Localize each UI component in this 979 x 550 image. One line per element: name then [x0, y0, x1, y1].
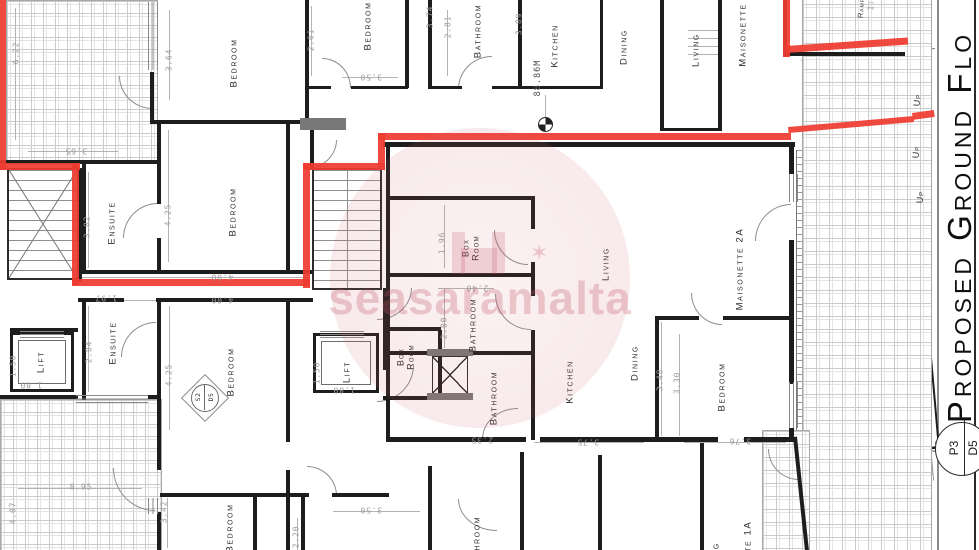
dim-label: 3.76	[729, 437, 751, 446]
wall	[789, 240, 794, 384]
ramp-label: Ramp	[856, 0, 866, 18]
wall	[700, 443, 704, 550]
site-boundary-line	[0, 0, 6, 170]
dim-label: 3.50	[360, 506, 382, 515]
dim-label: 3.74	[426, 6, 435, 28]
wall	[531, 330, 535, 440]
wall	[388, 273, 531, 277]
wall	[386, 142, 390, 442]
door-arc	[322, 58, 351, 88]
wall	[351, 86, 408, 89]
wall	[383, 327, 441, 331]
wall	[660, 0, 664, 130]
room-label: Maisonette	[738, 3, 749, 67]
room-label: Box Room	[396, 344, 417, 370]
room-label: Maisonette 2A	[735, 228, 746, 311]
level-label: 88.86M	[533, 60, 543, 97]
wall	[78, 270, 313, 274]
dim-label: 2.40	[466, 284, 488, 293]
dimension-line	[168, 130, 169, 262]
wall	[160, 493, 309, 497]
site-boundary-line	[0, 163, 80, 170]
dim-label: 8.95	[70, 483, 92, 492]
door-arc	[307, 466, 337, 496]
room-label: Living	[711, 542, 722, 550]
dim-label: 3.89	[515, 13, 524, 35]
wall	[286, 298, 290, 442]
window	[789, 174, 798, 202]
dim-label: 3.50	[360, 73, 382, 82]
dim-label: 4.25	[165, 364, 174, 386]
ref-bubble-bottom: D5	[966, 440, 979, 455]
staircase-left	[7, 168, 79, 280]
marker-bottom-text: D5	[207, 393, 215, 402]
room-label: Dining	[619, 29, 630, 65]
wall	[301, 497, 305, 550]
door-arc	[755, 204, 791, 241]
wall	[150, 72, 154, 124]
dim-label: 3.64	[165, 49, 174, 71]
dimension-line	[80, 277, 308, 278]
room-label: Dining	[630, 345, 641, 381]
dimension-line	[15, 8, 16, 140]
dim-label: 1.96	[438, 232, 447, 254]
wall	[723, 316, 793, 320]
room-label: Bedroom	[363, 1, 374, 50]
pavement-tiles	[802, 0, 932, 550]
wall	[518, 86, 603, 89]
room-label: Bedroom	[226, 347, 237, 396]
room-label: Bathroom	[489, 371, 500, 425]
dim-label: 6.22	[12, 42, 21, 64]
wall	[157, 124, 161, 204]
room-label: Ensuite	[108, 321, 119, 364]
wall	[744, 437, 794, 442]
dim-label: 3.65	[65, 147, 87, 156]
dim-label: 2.20	[292, 526, 301, 548]
room-label: Bathroom	[473, 4, 484, 58]
dim-label: 4.07	[9, 502, 18, 524]
window	[148, 2, 158, 70]
dim-label: 3.02	[83, 216, 92, 238]
window-sill	[427, 349, 473, 356]
window-sill	[300, 118, 346, 130]
wall	[286, 470, 290, 550]
room-label: Box Room	[461, 235, 482, 261]
dim-label: 3.30	[673, 372, 682, 394]
window	[76, 395, 148, 403]
door-arc	[482, 408, 518, 439]
wall	[386, 437, 526, 442]
wall	[286, 124, 290, 272]
room-label: Lift	[342, 361, 353, 383]
up-label: Up	[911, 145, 922, 158]
room-label: Maisonette 1A	[743, 521, 754, 550]
wall	[386, 196, 535, 200]
dim-label: 1.80	[333, 386, 355, 395]
door-arc	[123, 203, 158, 238]
ref-bubble-top: P3	[947, 441, 961, 456]
room-label: Bedroom	[228, 187, 239, 236]
room-label: Bedroom	[225, 503, 236, 550]
window-sill	[427, 393, 473, 400]
wall	[253, 497, 257, 550]
dim-label: 2.00	[440, 317, 449, 339]
wall	[598, 455, 602, 550]
site-boundary-line	[303, 163, 385, 170]
benchmark-symbol	[538, 117, 553, 132]
room-label: Bedroom	[717, 362, 728, 411]
room-label: Lift	[36, 351, 47, 373]
wall	[531, 196, 535, 229]
marker-top-text: S2	[194, 393, 202, 402]
stair-winder-lines	[9, 170, 77, 278]
wall	[309, 86, 331, 89]
wall	[655, 316, 699, 320]
kerb-line	[937, 0, 939, 550]
floorplan-screenshot: { "title": {"text": "Proposed Ground Flo…	[0, 0, 979, 550]
wall	[157, 238, 161, 272]
dim-label: 3.48	[656, 369, 665, 391]
dim-label: 3.42	[160, 501, 169, 523]
wall	[0, 395, 78, 399]
wall	[540, 437, 718, 442]
dim-label: 2.61	[307, 29, 316, 51]
door-arc	[495, 294, 531, 330]
wall	[520, 452, 524, 550]
wall	[428, 86, 462, 89]
wall	[438, 330, 442, 400]
wall	[660, 128, 722, 131]
dim-label: 4.25	[164, 204, 173, 226]
wall	[492, 86, 521, 89]
dim-label: 3.75	[577, 438, 599, 447]
site-boundary-line	[72, 163, 79, 285]
marker-divider	[204, 384, 205, 410]
site-boundary-line	[72, 279, 310, 286]
wall	[600, 0, 603, 88]
window	[20, 331, 64, 338]
up-label: Up	[912, 93, 923, 106]
dim-label: 2.84	[85, 341, 94, 363]
dim-label: 1:	[866, 0, 876, 11]
dim-label: 2.81	[444, 16, 453, 38]
room-label: Living	[691, 33, 702, 67]
site-boundary-line	[378, 133, 791, 140]
room-label: Kitchen	[550, 24, 561, 68]
window	[320, 331, 364, 338]
dim-label: 1.80	[20, 381, 42, 390]
wall	[405, 0, 409, 88]
dim-label: 4.00	[211, 273, 233, 282]
wall	[531, 262, 535, 296]
door-arc	[121, 322, 156, 357]
door-arc	[458, 56, 492, 89]
up-label: Up	[915, 190, 926, 203]
wall	[157, 302, 161, 470]
dim-label: 1.97	[95, 294, 117, 303]
dimension-line	[545, 95, 546, 117]
dimension-line	[688, 30, 718, 31]
window	[148, 498, 158, 514]
window	[789, 382, 798, 428]
dim-label: 4.00	[211, 296, 233, 305]
dim-label: 1.50	[313, 362, 322, 384]
staircase-central	[312, 168, 382, 290]
wall	[383, 142, 795, 147]
room-label: Living	[601, 247, 612, 281]
floor-plan: S2 D5 Refuse Room 1M Height	[0, 0, 979, 550]
room-label: Ensuite	[107, 201, 118, 244]
door-arc	[691, 293, 722, 325]
drawing-title: Proposed Ground Flo	[941, 31, 979, 423]
dim-label: 2.35	[471, 436, 493, 445]
room-label: Bathroom	[468, 298, 479, 352]
wall	[785, 52, 905, 56]
wall	[718, 0, 722, 130]
dim-label: 1.50	[9, 355, 18, 377]
site-boundary-line	[303, 163, 310, 288]
wall	[305, 0, 309, 122]
wall	[789, 142, 794, 174]
room-label: Bathroom	[472, 516, 483, 550]
wall	[428, 466, 432, 550]
wall	[332, 493, 389, 497]
door-arc	[494, 230, 528, 265]
room-label: Kitchen	[565, 360, 576, 404]
room-label: Bedroom	[229, 38, 240, 87]
